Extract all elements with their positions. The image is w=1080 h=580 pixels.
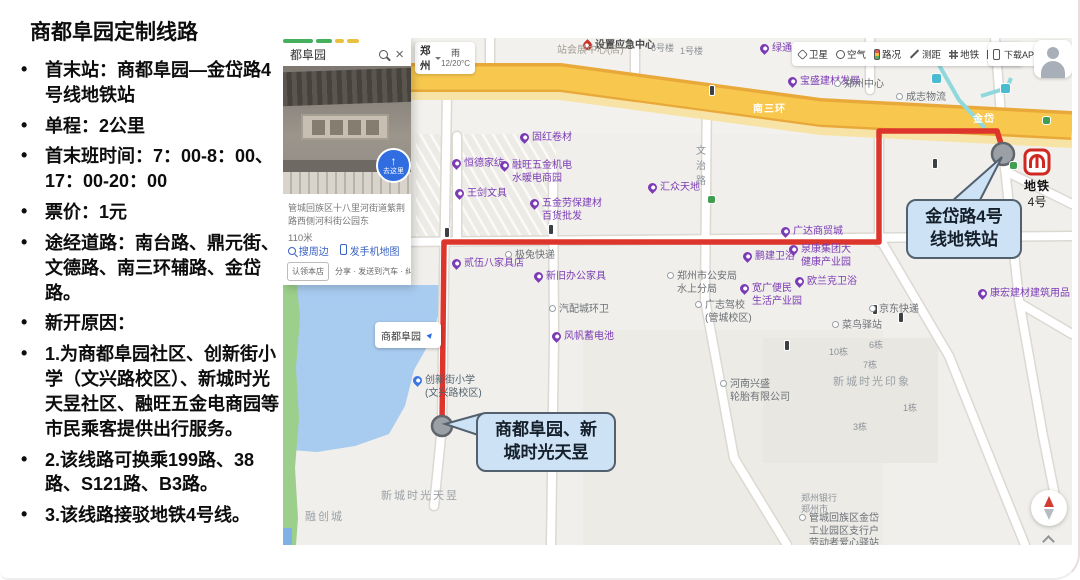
send-to-phone-link[interactable]: 发手机地图 — [340, 243, 400, 258]
poi-pin-icon — [549, 305, 556, 312]
avatar[interactable] — [1034, 40, 1072, 78]
weather-info: 雨 12/20°C — [441, 48, 470, 68]
map-poi[interactable]: 极兔快递 — [505, 250, 555, 263]
page-title: 商都阜园定制线路 — [30, 16, 279, 46]
poi-pin-icon — [976, 287, 989, 300]
map-poi[interactable]: 新旧办公家具 — [534, 271, 606, 284]
poi-label: 融旺五金机电 水暖电商园 — [512, 160, 572, 185]
search-input[interactable]: 都阜园 — [290, 46, 372, 63]
map-canvas[interactable]: 固红卷材恒德家纺融旺五金机电 水暖电商园王剑文具五金劳保建材 百货批发汇众天地贰… — [283, 38, 1072, 545]
poi-pin-icon — [646, 181, 659, 194]
user-icon — [1047, 47, 1059, 59]
slide: 商都阜园定制线路 首末站：商都阜园—金岱路4号线地铁站单程：2公里首末班时间：7… — [0, 0, 1080, 580]
poi-pin-icon — [450, 157, 463, 170]
map-poi[interactable]: 站会展中心(店) — [557, 45, 624, 58]
poi-card: 都阜园 × ↑ 去这里 管城回族区十八里河街道紫荆路西侧河科街公园东 110米 … — [283, 38, 411, 285]
weather-condition: 雨 — [451, 48, 460, 58]
poi-label: 郑州市公安局 水上分局 — [677, 271, 737, 296]
route-info-bullet: 票价：1元 — [18, 200, 279, 225]
map-poi[interactable]: 京东快递 — [869, 304, 919, 317]
traffic-light-icon — [710, 86, 714, 95]
map-poi[interactable]: 融旺五金机电 水暖电商园 — [500, 160, 572, 185]
traffic-strip — [283, 38, 367, 43]
map-poi[interactable]: 河南兴盛 轮胎有限公司 — [720, 379, 790, 404]
poi-label: 成志物流 — [906, 92, 946, 105]
poi-label: 郑州中心 — [844, 79, 884, 92]
route-info-panel: 商都阜园定制线路 首末站：商都阜园—金岱路4号线地铁站单程：2公里首末班时间：7… — [0, 0, 283, 580]
toolbar-metro-button[interactable]: 地铁 — [945, 42, 983, 66]
poi-label: 1号楼 — [680, 46, 703, 57]
ruler-icon — [910, 49, 919, 58]
route-info-bullet: 新开原因： — [18, 311, 279, 336]
map-poi[interactable]: 文 治 路 — [696, 144, 706, 189]
poi-pin-icon — [834, 80, 841, 87]
weather-card[interactable]: 郑州 雨 12/20°C — [415, 42, 475, 74]
map-poi[interactable]: 南三环 — [753, 104, 786, 117]
city-name: 郑州 — [420, 43, 433, 73]
metro-label: 地铁 — [1024, 180, 1050, 193]
map-poi[interactable]: 王剑文具 — [455, 188, 507, 201]
map-poi[interactable]: 1号楼 — [680, 46, 703, 57]
poi-label: 风帆蓄电池 — [564, 331, 614, 344]
map-poi[interactable]: 泉康集团大 健康产业园 — [789, 244, 851, 269]
poi-pin-icon — [896, 93, 903, 100]
poi-label: 广志驾校 (管城校区) — [705, 300, 752, 325]
start-callout: 商都阜园、新 城时光天昱 — [476, 412, 616, 472]
poi-pin-icon — [550, 330, 563, 343]
poi-pin-icon — [667, 272, 674, 279]
map-poi[interactable]: 五金劳保建材 百货批发 — [530, 198, 602, 223]
share-links[interactable]: 分享 · 发送到汽车 · 纠错 — [335, 266, 411, 277]
metro-line-badge — [1001, 84, 1010, 93]
toolbar-satellite-button[interactable]: 卫星 — [794, 42, 832, 66]
poi-label: 广达商贸城 — [793, 226, 843, 239]
fuyuan-map-label[interactable]: 商都阜园 — [375, 322, 441, 348]
poi-label: 创新街小学 (文兴路校区) — [425, 375, 482, 400]
metro-icon — [949, 50, 958, 59]
poi-label: 管城回族区金岱 工业园区支行户 劳动者爱心驿站 — [809, 513, 879, 545]
poi-pin-icon — [786, 75, 799, 88]
poi-pin-icon — [528, 197, 541, 210]
poi-label: 10栋 — [829, 347, 848, 358]
poi-label: 文 治 路 — [696, 144, 706, 189]
poi-label: 南三环 — [753, 104, 786, 117]
route-info-bullet: 首末站：商都阜园—金岱路4号线地铁站 — [18, 58, 279, 108]
poi-label: 京东快递 — [879, 304, 919, 317]
station-callout: 金岱路4号 线地铁站 — [906, 199, 1022, 259]
map-poi[interactable]: 1栋 — [903, 403, 917, 414]
poi-pin-icon — [720, 380, 727, 387]
traffic-light-icon — [785, 341, 789, 350]
poi-label: 宽广便民 生活产业园 — [752, 283, 802, 308]
toolbar-air-button[interactable]: 空气 — [832, 42, 870, 66]
poi-label: 融创城 — [305, 511, 344, 525]
search-icon[interactable] — [379, 50, 388, 59]
search-nearby-link[interactable]: 搜周边 — [288, 243, 329, 258]
city-selector[interactable]: 郑州 — [420, 43, 441, 73]
map-poi[interactable]: 欧兰克卫浴 — [795, 276, 857, 289]
poi-pin-icon — [799, 514, 806, 521]
poi-distance: 110米 — [288, 230, 313, 244]
poi-label: 泉康集团大 健康产业园 — [801, 244, 851, 269]
map-poi[interactable]: 鹏建卫浴 — [743, 251, 795, 264]
poi-label: 6栋 — [869, 340, 883, 351]
poi-label: 3栋 — [853, 422, 867, 433]
traffic-light-icon — [549, 225, 553, 234]
go-here-button[interactable]: ↑ 去这里 — [376, 148, 411, 183]
search-bar: 都阜园 × — [283, 43, 411, 66]
poi-label: 金岱 — [973, 114, 995, 127]
map-poi[interactable]: 10栋 — [829, 347, 848, 358]
map-poi[interactable]: 康宏建材建筑用品 — [978, 288, 1070, 301]
metro-station-badge[interactable]: 地铁 4号 — [1023, 148, 1051, 209]
poi-pin-icon — [738, 282, 751, 295]
map-poi[interactable]: 成志物流 — [896, 92, 946, 105]
poi-footer: 认领本店 分享 · 发送到汽车 · 纠错 — [287, 262, 411, 281]
collapse-chevron-icon[interactable] — [1043, 535, 1055, 545]
poi-address: 管城回族区十八里河街道紫荆路西侧河科街公园东 — [288, 202, 406, 228]
poi-pin-icon — [505, 251, 512, 258]
map-poi[interactable]: 汽配城环卫 — [549, 304, 609, 317]
poi-pin-icon — [450, 257, 463, 270]
photo-awning — [283, 68, 411, 107]
poi-label: 7栋 — [863, 360, 877, 371]
navigate-arrow-icon: ↑ — [391, 155, 397, 167]
poi-label: 新旧办公家具 — [546, 271, 606, 284]
poi-label: 站会展中心(店) — [557, 45, 624, 58]
map-poi[interactable]: 6栋 — [869, 340, 883, 351]
map-poi[interactable]: 金岱 — [973, 114, 995, 127]
photo-sign — [301, 114, 389, 140]
poi-pin-icon — [411, 374, 424, 387]
air-icon — [836, 50, 845, 59]
toolbar-traffic-button[interactable]: 路况 — [870, 42, 905, 66]
poi-label: 菜鸟驿站 — [842, 320, 882, 333]
poi-pin-icon — [832, 321, 839, 328]
poi-label: 五金劳保建材 百货批发 — [542, 198, 602, 223]
map-poi[interactable]: 6号楼 — [651, 43, 674, 54]
traffic-light-icon — [933, 159, 937, 168]
map-poi[interactable]: 广达商贸城 — [781, 226, 843, 239]
bus-stop-icon — [1010, 162, 1017, 169]
route-info-bullet: 首末班时间：7：00-8：00、17：00-20：00 — [18, 144, 279, 194]
poi-label: 汽配城环卫 — [559, 304, 609, 317]
chevron-down-icon — [435, 57, 441, 63]
poi-label: 河南兴盛 轮胎有限公司 — [730, 379, 790, 404]
poi-label: 王剑文具 — [467, 188, 507, 201]
poi-pin-icon — [758, 42, 771, 55]
map-poi[interactable]: 风帆蓄电池 — [552, 331, 614, 344]
map-poi[interactable]: 管城回族区金岱 工业园区支行户 劳动者爱心驿站 — [799, 513, 879, 545]
navigate-arrow-icon — [426, 330, 435, 340]
map-poi[interactable]: 郑州中心 — [834, 79, 884, 92]
poi-pin-icon — [518, 131, 531, 144]
route-info-bullet: 单程：2公里 — [18, 114, 279, 139]
route-info-bullet: 途经道路：南台路、鼎元街、文德路、南三环辅路、金岱路。 — [18, 231, 279, 305]
route-info-bullet: 3.该线路接驳地铁4号线。 — [18, 503, 279, 528]
poi-label: 新城时光印象 — [833, 376, 911, 390]
close-icon[interactable]: × — [395, 47, 404, 62]
poi-actions: 搜周边 发手机地图 — [288, 243, 400, 258]
map-poi[interactable]: 7栋 — [863, 360, 877, 371]
poi-pin-icon — [453, 187, 466, 200]
route-info-list: 首末站：商都阜园—金岱路4号线地铁站单程：2公里首末班时间：7：00-8：00、… — [18, 58, 279, 528]
traffic-light-icon — [445, 228, 449, 237]
compass-control[interactable] — [1031, 490, 1067, 526]
phone-icon — [340, 244, 347, 255]
temperature: 12/20°C — [441, 59, 470, 68]
traffic-icon — [874, 49, 880, 60]
map-poi[interactable]: 汇众天地 — [648, 182, 700, 195]
bus-stop-icon — [1043, 117, 1050, 124]
compass-north-needle — [1044, 496, 1054, 507]
poi-pin-icon — [787, 243, 800, 256]
poi-label: 欧兰克卫浴 — [807, 276, 857, 289]
metro-line-badge — [932, 74, 941, 83]
map-poi[interactable]: 固红卷材 — [520, 132, 572, 145]
map-poi[interactable]: 创新街小学 (文兴路校区) — [413, 375, 482, 400]
poi-pin-icon — [869, 305, 876, 312]
poi-label: 固红卷材 — [532, 132, 572, 145]
poi-label: 1栋 — [903, 403, 917, 414]
map-poi[interactable]: 新城时光天昱 — [381, 490, 459, 504]
poi-label: 极兔快递 — [515, 250, 555, 263]
map-poi[interactable]: 3栋 — [853, 422, 867, 433]
satellite-icon — [797, 49, 808, 60]
poi-label: 新城时光天昱 — [381, 490, 459, 504]
phone-icon — [993, 49, 1000, 60]
map-poi[interactable]: 菜鸟驿站 — [832, 320, 882, 333]
search-icon — [288, 247, 296, 255]
map-poi[interactable]: 融创城 — [305, 511, 344, 525]
bus-stop-icon — [708, 196, 715, 203]
map-poi[interactable]: 新城时光印象 — [833, 376, 911, 390]
compass-south-needle — [1044, 509, 1054, 520]
poi-pin-icon — [695, 301, 702, 308]
poi-pin-icon — [779, 225, 792, 238]
claim-shop-button[interactable]: 认领本店 — [287, 262, 329, 281]
poi-pin-icon — [741, 250, 754, 263]
metro-line-number: 4号 — [1028, 196, 1047, 209]
poi-label: 恒德家纺 — [464, 158, 504, 171]
poi-pin-icon — [498, 159, 511, 172]
poi-label: 6号楼 — [651, 43, 674, 54]
toolbar-ruler-button[interactable]: 测距 — [905, 42, 945, 66]
poi-label: 汇众天地 — [660, 182, 700, 195]
route-info-bullet: 2.该线路可换乘199路、38路、S121路、B3路。 — [18, 448, 279, 498]
map-poi[interactable]: 恒德家纺 — [452, 158, 504, 171]
metro-logo-icon — [1023, 148, 1051, 176]
map-poi[interactable]: 广志驾校 (管城校区) — [695, 300, 752, 325]
poi-pin-icon — [532, 270, 545, 283]
route-info-bullet: 1.为商都阜园社区、创新街小学（文兴路校区）、新城时光天昱社区、融旺五金电商园等… — [18, 342, 279, 441]
map-poi[interactable]: 郑州市公安局 水上分局 — [667, 271, 737, 296]
poi-label: 康宏建材建筑用品 — [990, 288, 1070, 301]
